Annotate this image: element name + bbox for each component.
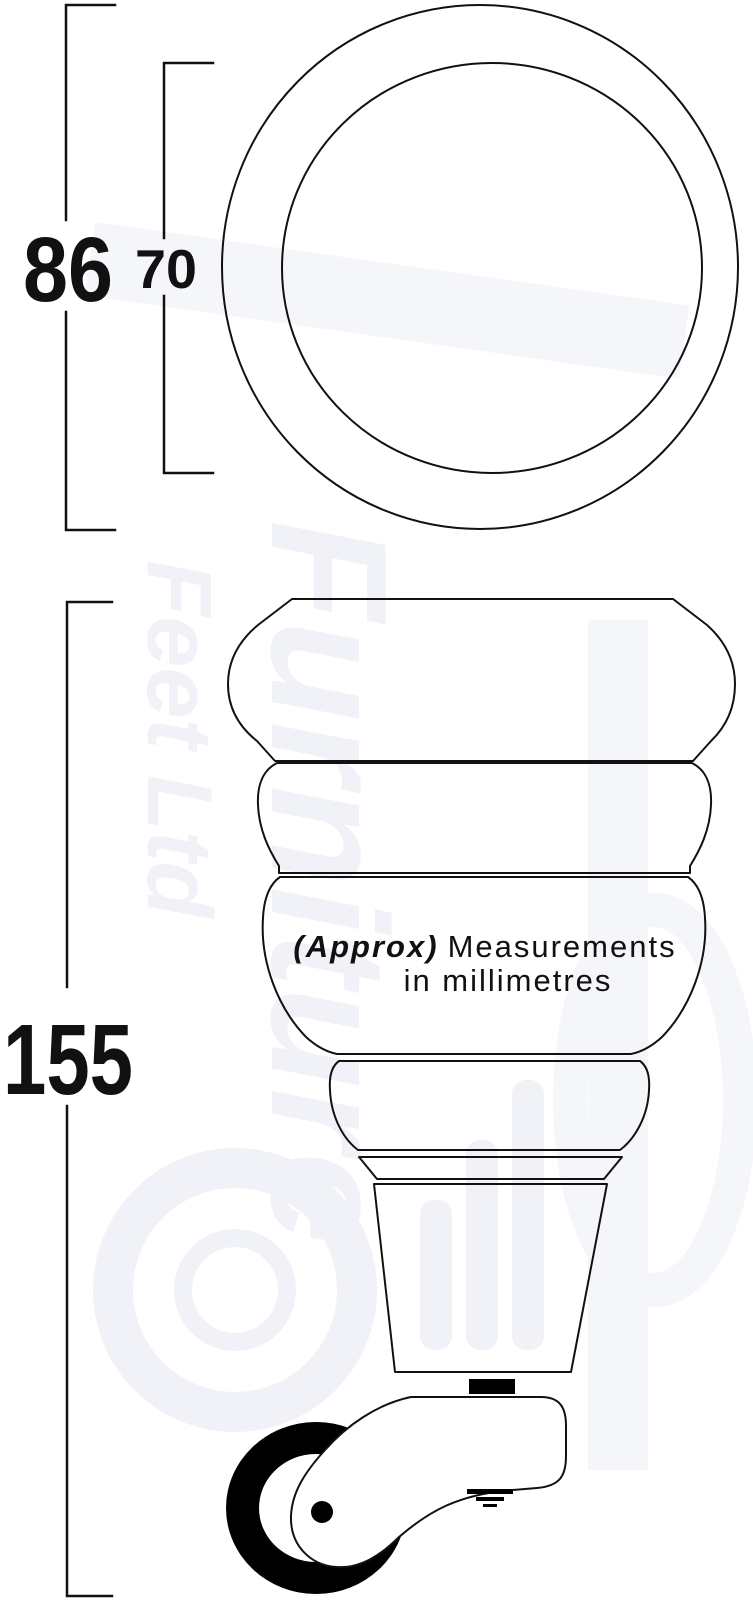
watermark-caster-hub-icon [183,1238,287,1342]
watermark-bar-3 [512,1080,544,1350]
caster-horn [291,1397,566,1567]
watermark: Furniture Feet Ltd [85,222,740,1470]
technical-drawing-page: Furniture Feet Ltd 86 70 155 [0,0,753,1600]
watermark-word2: Feet Ltd [128,560,230,920]
note-line-2: in millimetres [404,963,613,998]
fixing-plate [469,1379,515,1394]
watermark-word1: Furniture [237,520,421,1244]
note-measurements: Measurements [448,929,677,964]
watermark-bar-1 [420,1200,452,1350]
dimension-155: 155 [3,602,133,1596]
note-approx: (Approx) [293,929,438,964]
screw-icon [467,1489,513,1507]
watermark-band [588,620,648,1470]
dimension-86-label: 86 [23,219,113,321]
furniture-leg-caster-diagram: Furniture Feet Ltd 86 70 155 [0,0,753,1600]
watermark-caster-wheel-icon [113,1168,357,1412]
note-line-1: (Approx)Measurements [293,929,676,964]
watermark-bar-2 [466,1140,498,1350]
screw-thread-1 [467,1489,513,1494]
dimension-86: 86 [23,5,115,530]
dimension-155-label: 155 [3,1004,133,1116]
wheel-axle-hub [311,1501,333,1523]
dimension-70-label: 70 [135,238,197,300]
screw-thread-3 [483,1504,497,1507]
screw-thread-2 [476,1497,504,1501]
